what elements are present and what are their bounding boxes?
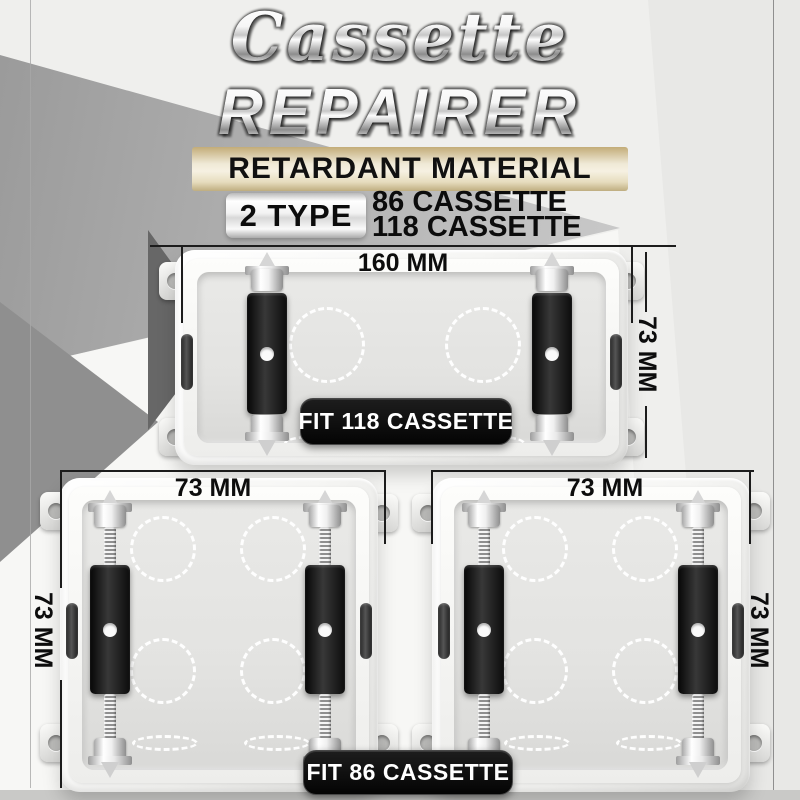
repair-bracket (303, 490, 347, 780)
knockout-circle (502, 516, 568, 582)
bracket-hole (691, 623, 705, 637)
dimension-tick (749, 470, 751, 544)
side-slot (66, 603, 78, 659)
repair-bracket (530, 252, 574, 457)
repair-bracket (88, 490, 132, 780)
dimension-height-86-left: 73 MM (28, 592, 57, 668)
knockout-circle (612, 638, 678, 704)
threaded-rod (478, 694, 490, 740)
dimension-tick (384, 470, 386, 544)
knockout-circle (445, 307, 521, 383)
threaded-rod (104, 527, 116, 567)
bracket-bar (305, 565, 345, 694)
screw-tip (543, 440, 561, 456)
dimension-width-86-left: 73 MM (148, 474, 278, 503)
bracket-bar (678, 565, 718, 694)
dimension-line (60, 470, 386, 472)
hex-nut (309, 505, 341, 527)
bracket-bar (90, 565, 130, 694)
bracket-hole (103, 623, 117, 637)
side-slot (360, 603, 372, 659)
fit-86-pill: FIT 86 CASSETTE (303, 750, 513, 795)
knockout-ellipse (244, 735, 310, 751)
bracket-bar (464, 565, 504, 694)
knockout-circle (612, 516, 678, 582)
dimension-height-86-right: 73 MM (744, 592, 773, 668)
threaded-rod (478, 527, 490, 567)
threaded-rod (104, 694, 116, 740)
hex-nut (468, 505, 500, 527)
title-main-line: REPAIRER REPAIRER (0, 82, 800, 144)
dimension-height-118: 73 MM (632, 316, 661, 392)
hex-nut (94, 505, 126, 527)
hex-nut (682, 505, 714, 527)
knockout-ellipse (132, 735, 198, 751)
dimension-line (645, 252, 647, 312)
threaded-rod (319, 694, 331, 740)
dimension-tick (60, 470, 62, 544)
repair-bracket (676, 490, 720, 780)
cassette-86-left-diagram (60, 478, 378, 792)
fit-118-pill: FIT 118 CASSETTE (300, 398, 512, 445)
knockout-circle (130, 516, 196, 582)
repair-bracket (245, 252, 289, 457)
dimension-line (432, 470, 754, 472)
bracket-hole (545, 347, 559, 361)
threaded-rod (692, 527, 704, 567)
repair-bracket (462, 490, 506, 780)
hex-nut (536, 269, 568, 291)
title-script-word: Cassette Cassette (231, 4, 570, 70)
bracket-hole (477, 623, 491, 637)
side-slot (438, 603, 450, 659)
bracket-bar (532, 293, 572, 414)
dimension-line (60, 680, 62, 788)
dimension-line (150, 245, 676, 247)
dimension-tick (181, 245, 183, 323)
bracket-hole (318, 623, 332, 637)
dimension-width-118: 160 MM (338, 249, 468, 278)
product-infographic: Cassette Cassette REPAIRER REPAIRER RETA… (0, 0, 800, 800)
screw-tip (258, 440, 276, 456)
type-option-118: 118 CASSETTE (372, 215, 582, 240)
knockout-circle (240, 638, 306, 704)
type-options: 86 CASSETTE 118 CASSETTE (372, 190, 582, 240)
dimension-line (645, 406, 647, 458)
screw-tip (101, 762, 119, 778)
title-script-chrome: Cassette (231, 4, 570, 70)
knockout-circle (289, 307, 365, 383)
title-script-line: Cassette Cassette (0, 4, 800, 70)
side-slot (610, 334, 622, 390)
knockout-circle (502, 638, 568, 704)
cassette-86-right-diagram (432, 478, 750, 792)
screw-tip (689, 762, 707, 778)
dimension-tick (631, 245, 633, 323)
knockout-ellipse (616, 735, 682, 751)
dimension-tick (431, 470, 433, 544)
title-main-chrome: REPAIRER (218, 81, 582, 145)
retardant-material-banner: RETARDANT MATERIAL (192, 147, 628, 191)
bracket-hole (260, 347, 274, 361)
knockout-circle (130, 638, 196, 704)
side-slot (732, 603, 744, 659)
threaded-rod (319, 527, 331, 567)
dimension-line (60, 544, 62, 588)
bracket-bar (247, 293, 287, 414)
knockout-ellipse (504, 735, 570, 751)
hex-nut (251, 269, 283, 291)
title-main-word: REPAIRER REPAIRER (218, 81, 582, 145)
type-count-badge: 2 TYPE (226, 193, 366, 238)
dimension-width-86-right: 73 MM (540, 474, 670, 503)
side-slot (181, 334, 193, 390)
threaded-rod (692, 694, 704, 740)
knockout-circle (240, 516, 306, 582)
